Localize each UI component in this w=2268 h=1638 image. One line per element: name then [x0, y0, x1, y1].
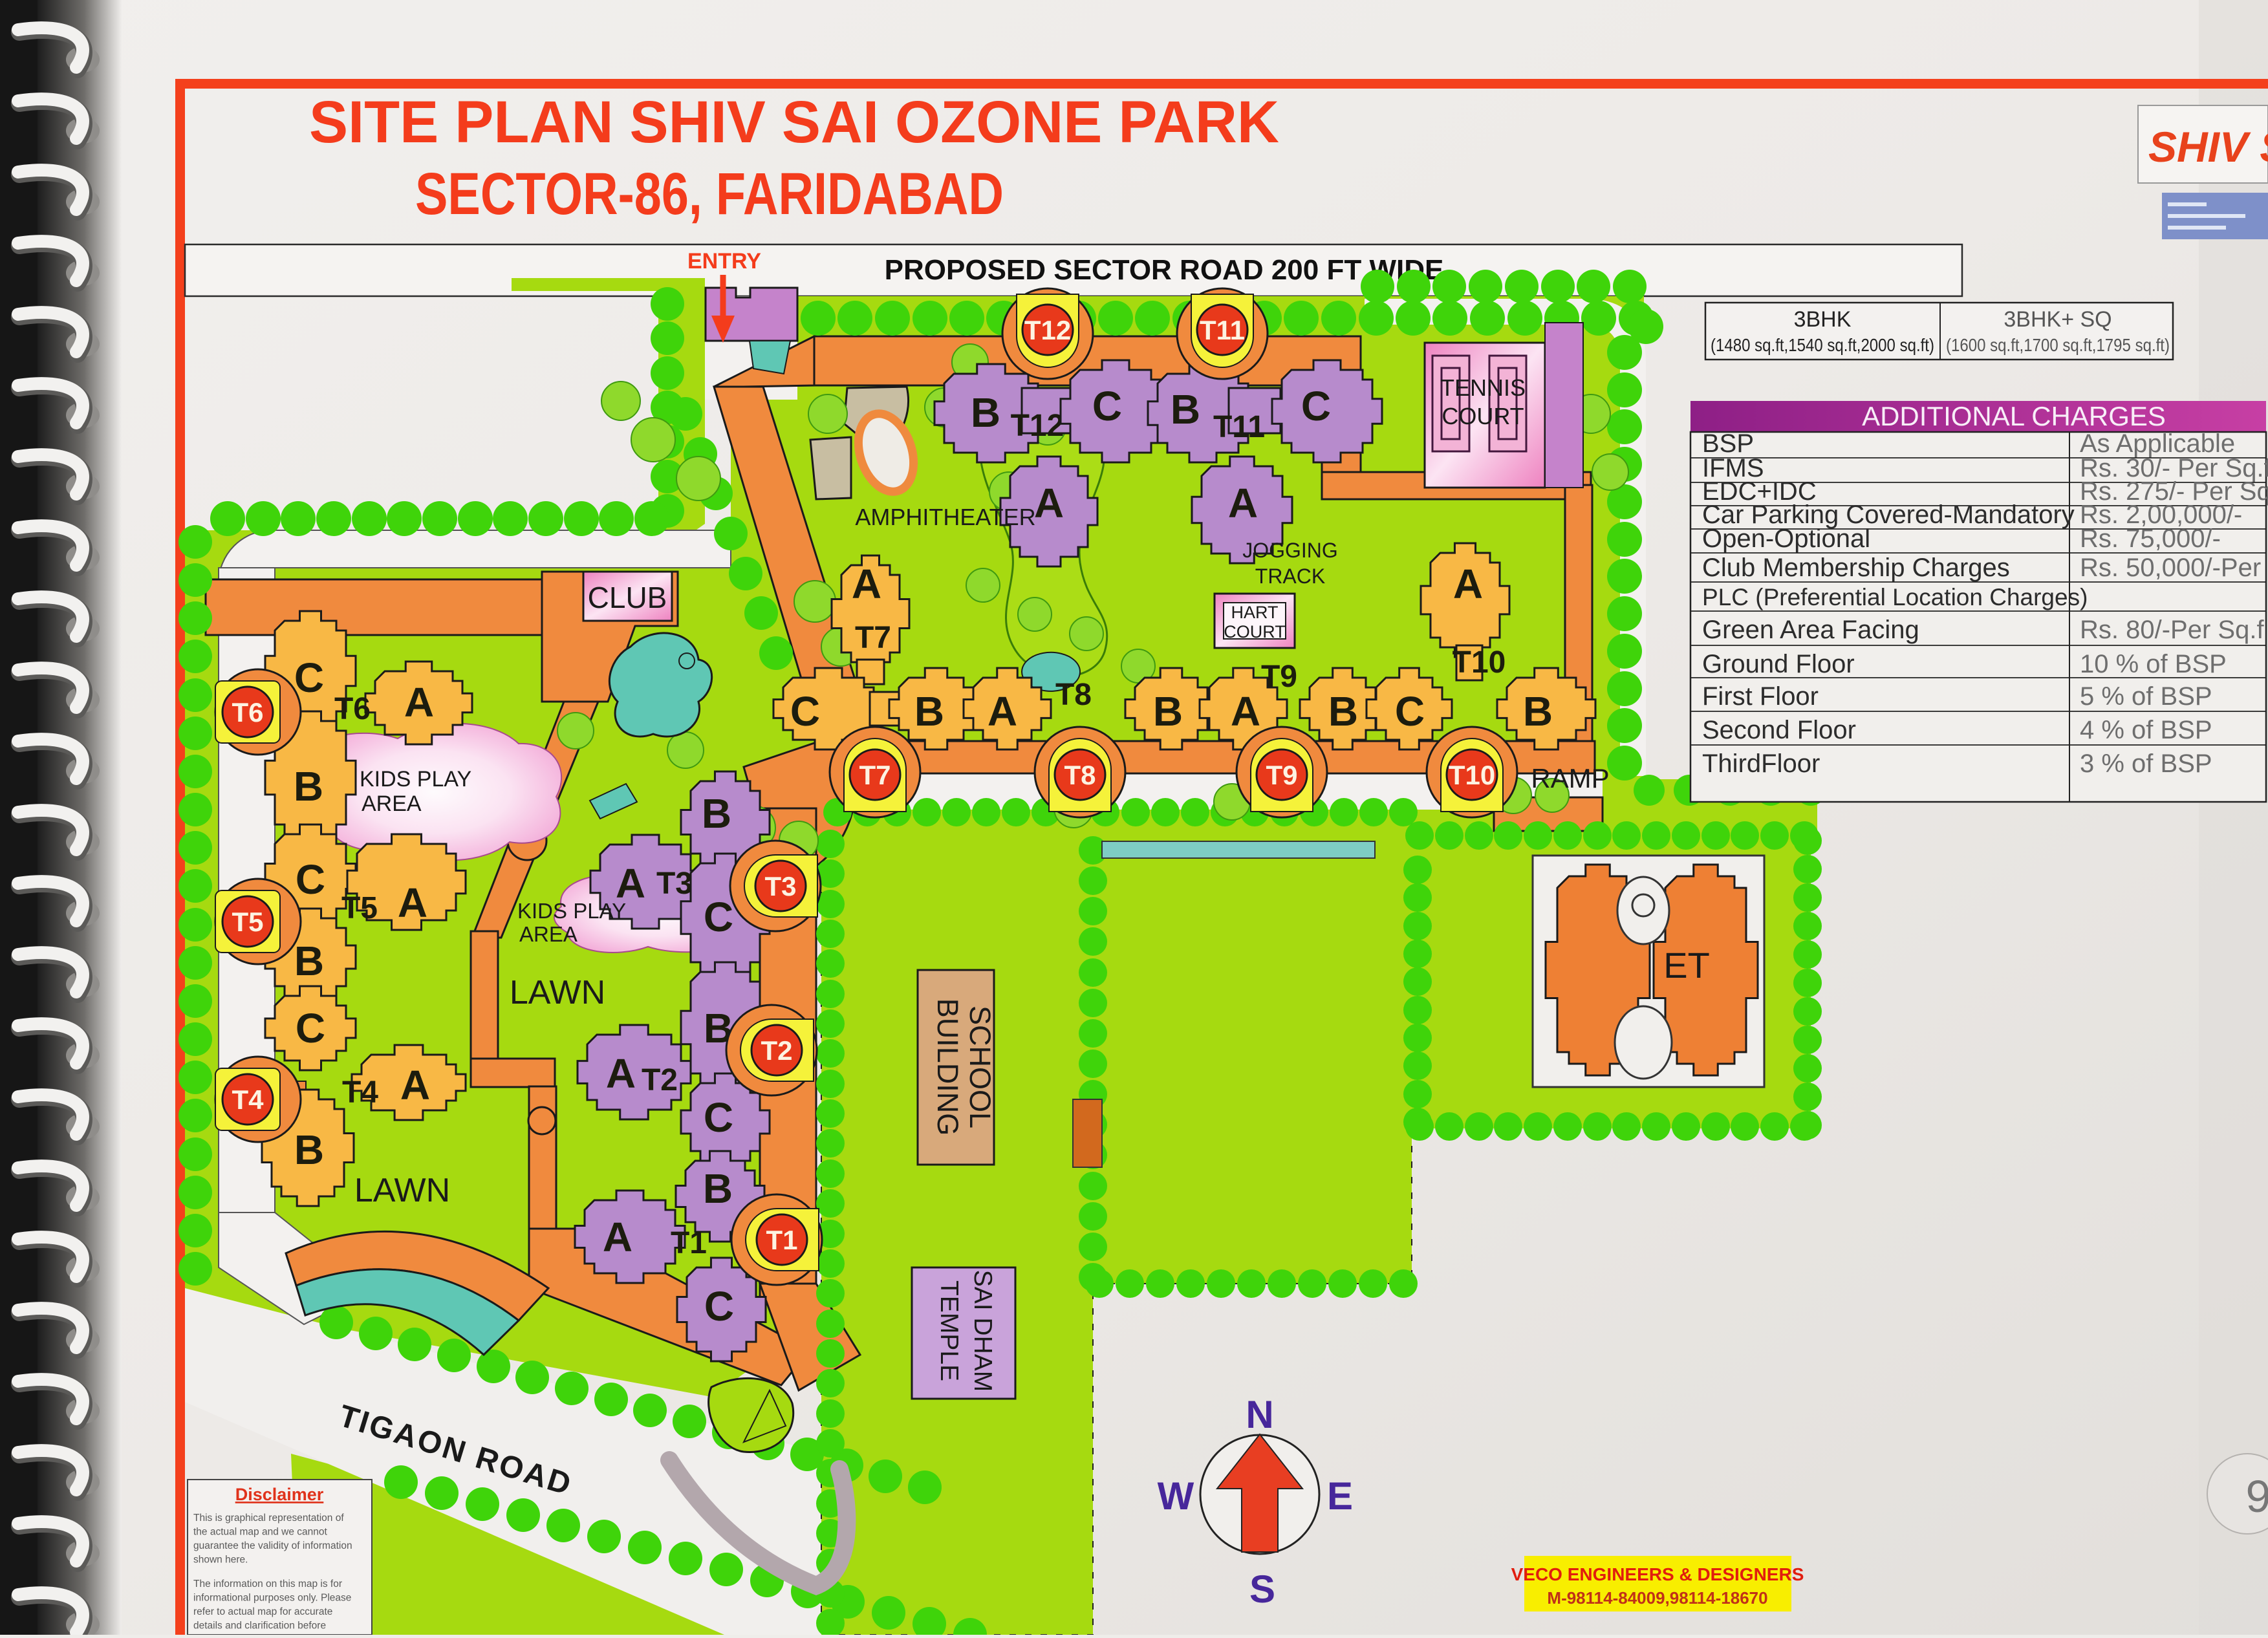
svg-text:C: C — [296, 856, 325, 903]
svg-text:T3: T3 — [764, 871, 796, 901]
svg-text:SCHOOL: SCHOOL — [964, 1006, 997, 1128]
svg-text:Green Area Facing: Green Area Facing — [1702, 616, 1919, 644]
svg-text:3BHK+ SQ: 3BHK+ SQ — [2003, 307, 2111, 332]
svg-text:T9: T9 — [1266, 760, 1297, 790]
svg-text:C: C — [704, 1094, 733, 1141]
svg-text:AREA: AREA — [362, 792, 422, 816]
svg-text:Open-Optional: Open-Optional — [1702, 524, 1870, 553]
svg-text:T5: T5 — [232, 907, 263, 937]
svg-text:T3: T3 — [656, 867, 693, 901]
svg-text:Second Floor: Second Floor — [1702, 716, 1856, 744]
svg-text:T1: T1 — [671, 1226, 707, 1260]
svg-text:A: A — [603, 1214, 632, 1260]
svg-text:AMPHITHEATER: AMPHITHEATER — [855, 504, 1035, 530]
svg-text:KIDS PLAY: KIDS PLAY — [517, 899, 626, 923]
svg-text:A: A — [404, 679, 434, 726]
svg-text:Ground Floor: Ground Floor — [1702, 650, 1855, 678]
svg-text:PLC (Preferential Location Cha: PLC (Preferential Location Charges) — [1702, 584, 2088, 610]
svg-text:refer to actual map for accura: refer to actual map for accurate — [193, 1606, 332, 1617]
svg-text:T12: T12 — [1024, 315, 1071, 345]
svg-text:S: S — [1249, 1568, 1275, 1611]
svg-text:KIDS PLAY: KIDS PLAY — [360, 767, 471, 792]
svg-text:T10: T10 — [1449, 760, 1495, 790]
svg-text:B: B — [294, 763, 323, 810]
svg-text:T9: T9 — [1261, 660, 1297, 694]
svg-text:TENNIS: TENNIS — [1440, 374, 1526, 401]
svg-text:Rs. 50,000/-Per: Rs. 50,000/-Per — [2080, 554, 2261, 582]
svg-text:M-98114-84009,98114-18670: M-98114-84009,98114-18670 — [1547, 1588, 1767, 1608]
svg-text:T6: T6 — [232, 697, 263, 727]
svg-text:3BHK: 3BHK — [1794, 307, 1852, 332]
svg-text:T2: T2 — [642, 1063, 678, 1097]
svg-text:T8: T8 — [1055, 678, 1092, 712]
svg-text:AREA: AREA — [519, 922, 578, 946]
svg-text:shown here.: shown here. — [193, 1555, 248, 1566]
svg-text:A: A — [1231, 688, 1260, 735]
svg-text:B: B — [294, 1126, 324, 1173]
svg-text:C: C — [294, 654, 324, 701]
svg-text:A: A — [606, 1050, 636, 1097]
svg-text:LAWN: LAWN — [354, 1172, 450, 1209]
svg-text:N: N — [1246, 1393, 1273, 1436]
svg-text:C: C — [704, 894, 733, 940]
svg-text:SECTOR-86, FARIDABAD: SECTOR-86, FARIDABAD — [415, 161, 1004, 227]
svg-text:B: B — [971, 389, 1000, 436]
svg-text:C: C — [704, 1283, 734, 1330]
svg-text:ADDITIONAL CHARGES: ADDITIONAL CHARGES — [1862, 401, 2166, 431]
svg-text:B: B — [914, 688, 944, 735]
svg-text:T2: T2 — [761, 1035, 792, 1066]
svg-text:A: A — [1453, 561, 1483, 607]
svg-text:C: C — [1395, 688, 1425, 735]
svg-text:A: A — [400, 1062, 430, 1108]
svg-text:T7: T7 — [859, 760, 891, 790]
svg-text:CLUB: CLUB — [588, 581, 667, 614]
svg-text:A: A — [988, 688, 1017, 735]
svg-text:B: B — [1171, 386, 1200, 433]
svg-text:the actual map and we cannot: the actual map and we cannot — [193, 1527, 327, 1538]
svg-text:3 % of BSP: 3 % of BSP — [2080, 749, 2212, 778]
svg-text:TEMPLE: TEMPLE — [935, 1280, 963, 1381]
svg-text:C: C — [790, 688, 820, 735]
svg-text:5 % of BSP: 5 % of BSP — [2080, 682, 2212, 711]
svg-text:informational purposes only. P: informational purposes only. Please — [193, 1593, 351, 1604]
svg-text:ThirdFloor: ThirdFloor — [1702, 749, 1820, 778]
svg-text:B: B — [703, 1165, 733, 1212]
svg-text:First Floor: First Floor — [1702, 682, 1819, 711]
svg-text:ET: ET — [1663, 945, 1710, 986]
svg-text:B: B — [1328, 688, 1358, 735]
svg-text:SHIV S: SHIV S — [2148, 123, 2268, 171]
svg-text:TRACK: TRACK — [1255, 565, 1325, 588]
svg-text:SAI DHAM: SAI DHAM — [969, 1270, 997, 1392]
svg-text:C: C — [1092, 383, 1122, 429]
svg-text:BUILDING: BUILDING — [931, 998, 964, 1136]
svg-text:B: B — [1523, 688, 1553, 735]
svg-text:T12: T12 — [1011, 409, 1064, 443]
svg-text:(1600 sq.ft,1700 sq.ft,1795 sq: (1600 sq.ft,1700 sq.ft,1795 sq.ft) — [1946, 335, 2170, 355]
svg-text:T10: T10 — [1453, 645, 1506, 680]
svg-text:W: W — [1158, 1474, 1194, 1518]
svg-text:Disclaimer: Disclaimer — [235, 1485, 324, 1504]
svg-text:COURT: COURT — [1224, 622, 1286, 641]
svg-text:10 % of BSP: 10 % of BSP — [2080, 650, 2227, 678]
svg-text:T4: T4 — [232, 1084, 264, 1115]
svg-text:T6: T6 — [334, 692, 371, 726]
svg-text:Rs. 75,000/-: Rs. 75,000/- — [2080, 524, 2221, 553]
svg-text:A: A — [1228, 480, 1258, 526]
svg-text:T5: T5 — [341, 891, 378, 925]
svg-text:A: A — [1034, 480, 1064, 526]
svg-text:A: A — [852, 561, 881, 607]
svg-text:COURT: COURT — [1442, 403, 1524, 429]
svg-text:4 % of BSP: 4 % of BSP — [2080, 716, 2212, 744]
svg-text:details and clarification befo: details and clarification before — [193, 1621, 326, 1632]
svg-text:The information on this map is: The information on this map is for — [193, 1579, 342, 1590]
svg-text:HART: HART — [1231, 603, 1278, 622]
svg-text:JOGGING: JOGGING — [1242, 539, 1338, 562]
svg-text:B: B — [294, 938, 324, 984]
svg-text:T8: T8 — [1064, 760, 1096, 790]
svg-text:T4: T4 — [342, 1075, 378, 1110]
svg-text:T11: T11 — [1200, 315, 1245, 345]
svg-text:C: C — [1301, 383, 1331, 429]
svg-text:Club Membership Charges: Club Membership Charges — [1702, 554, 2010, 582]
svg-text:PROPOSED SECTOR ROAD 200 FT WI: PROPOSED SECTOR ROAD 200 FT WIDE — [885, 254, 1444, 286]
svg-text:T7: T7 — [855, 621, 891, 655]
svg-text:SITE PLAN SHIV SAI OZONE PARK: SITE PLAN SHIV SAI OZONE PARK — [309, 89, 1279, 155]
svg-text:LAWN: LAWN — [510, 974, 605, 1011]
svg-text:C: C — [296, 1005, 325, 1051]
svg-text:A: A — [398, 879, 427, 926]
svg-text:9: 9 — [2246, 1471, 2268, 1522]
svg-text:ENTRY: ENTRY — [687, 249, 761, 274]
svg-text:B: B — [702, 790, 731, 837]
svg-text:Rs. 80/-Per Sq.f: Rs. 80/-Per Sq.f — [2080, 616, 2264, 644]
svg-text:B: B — [1153, 688, 1183, 735]
svg-text:E: E — [1327, 1474, 1353, 1518]
svg-text:RAMP: RAMP — [1531, 763, 1609, 793]
svg-text:T11: T11 — [1213, 410, 1265, 444]
svg-text:guarantee the validity of info: guarantee the validity of information — [193, 1540, 352, 1551]
svg-text:T1: T1 — [766, 1225, 797, 1255]
svg-text:VECO ENGINEERS & DESIGNERS: VECO ENGINEERS & DESIGNERS — [1511, 1564, 1804, 1584]
svg-text:(1480 sq.ft,1540 sq.ft,2000 sq: (1480 sq.ft,1540 sq.ft,2000 sq.ft) — [1711, 335, 1934, 355]
svg-text:This is graphical representati: This is graphical representation of — [193, 1513, 344, 1524]
